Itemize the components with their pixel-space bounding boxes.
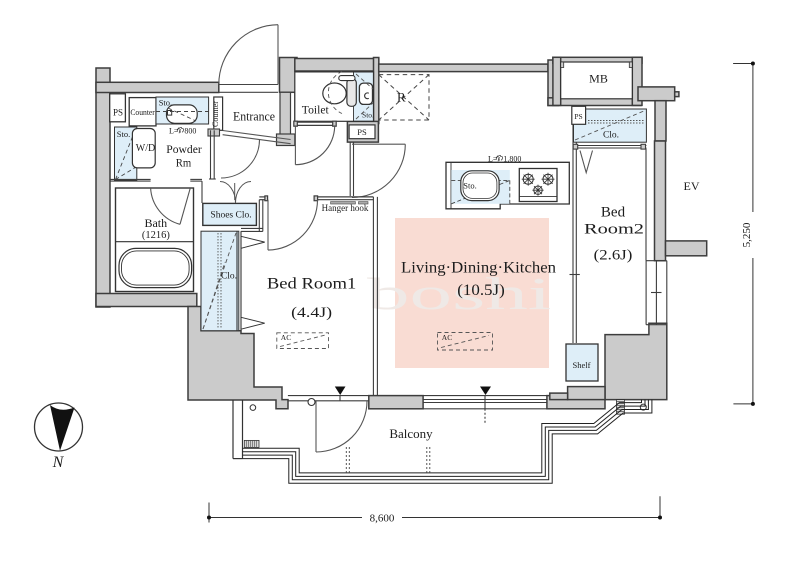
svg-text:N: N [52,454,65,471]
svg-text:PS: PS [574,112,582,121]
svg-text:5,250: 5,250 [741,222,753,247]
svg-text:Counter: Counter [210,101,220,127]
svg-text:Counter: Counter [130,107,155,117]
svg-text:R: R [397,90,406,105]
svg-text:Toilet: Toilet [302,105,330,117]
svg-text:Powder: Powder [166,142,202,156]
svg-text:Shelf: Shelf [573,360,591,370]
svg-text:Sto.: Sto. [463,181,476,191]
svg-text:Sto.: Sto. [117,129,130,139]
svg-text:Clo.: Clo. [221,272,237,282]
svg-text:Balcony: Balcony [389,426,433,441]
svg-text:Entrance: Entrance [233,109,275,124]
svg-text:PS: PS [357,127,367,137]
svg-text:AC: AC [281,333,291,342]
svg-text:MB: MB [589,72,608,86]
svg-text:(2.6J): (2.6J) [594,248,633,264]
svg-text:PS: PS [113,108,123,118]
svg-text:800: 800 [184,127,196,136]
svg-text:8,600: 8,600 [370,513,395,525]
svg-text:(4.4J): (4.4J) [291,305,332,321]
svg-text:Bed Room1: Bed Room1 [267,276,356,293]
svg-text:W/D: W/D [136,143,155,154]
svg-text:Bath: Bath [144,216,167,230]
svg-text:Living·Dining·Kitchen: Living·Dining·Kitchen [401,260,556,277]
svg-text:Rm: Rm [176,156,192,170]
svg-text:Room2: Room2 [584,222,644,238]
svg-text:1,800: 1,800 [503,155,521,164]
svg-text:AC: AC [442,333,452,342]
svg-text:Shoes Clo.: Shoes Clo. [210,211,251,221]
svg-text:EV: EV [684,179,700,193]
svg-text:(10.5J): (10.5J) [457,282,505,299]
svg-text:Bed: Bed [601,205,626,221]
svg-text:Clo.: Clo. [603,131,619,141]
svg-text:(1216): (1216) [142,230,170,241]
svg-text:Hanger hook: Hanger hook [322,203,369,213]
